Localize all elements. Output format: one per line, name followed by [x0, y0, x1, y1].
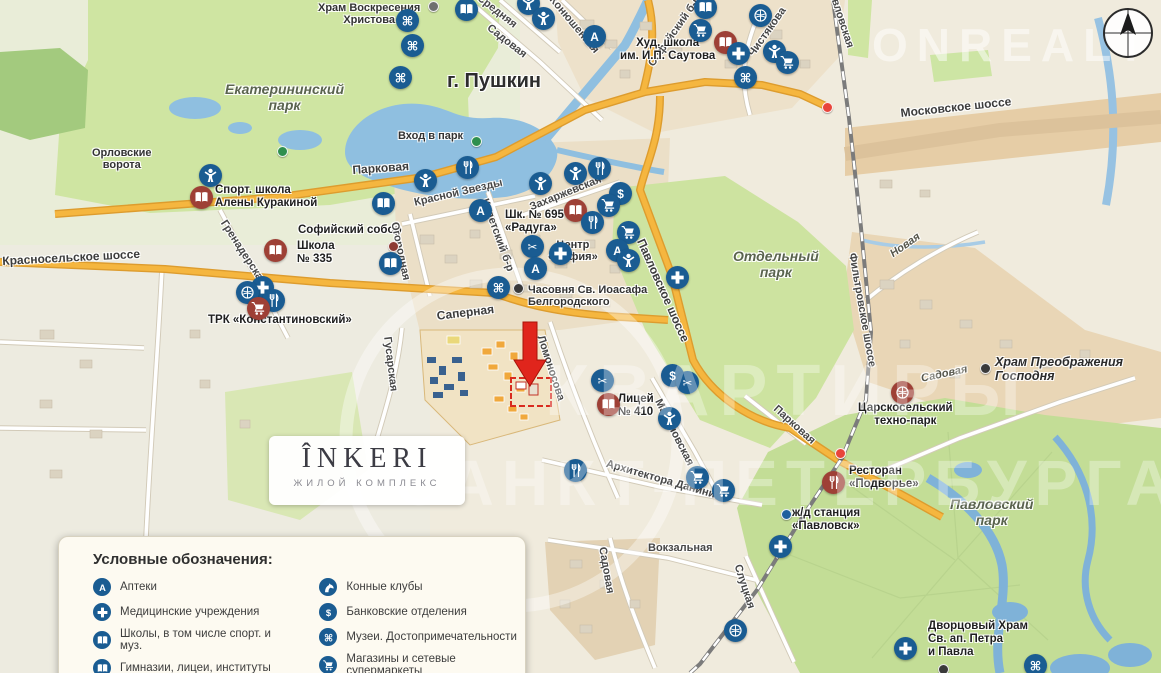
legend-row: Банковские отделения: [319, 603, 525, 621]
legend-bank-icon: [319, 603, 337, 621]
legend-label: Магазины и сетевые супермаркеты: [346, 653, 525, 673]
legend-shop-icon: [319, 656, 337, 673]
legend-row: Музеи. Достопримечательности: [319, 628, 525, 646]
legend-column-right: Конные клубыБанковские отделенияМузеи. Д…: [319, 578, 525, 673]
legend-school-icon: [93, 659, 111, 673]
inkeri-logo: ÎNKERI ЖИЛОЙ КОМПЛЕКС: [269, 436, 465, 505]
legend-label: Гимназии, лицеи, институты: [120, 662, 271, 673]
legend-label: Конные клубы: [346, 581, 422, 593]
legend-label: Музеи. Достопримечательности: [346, 631, 517, 643]
legend-pharmacy-icon: [93, 578, 111, 596]
inkeri-title: ÎNKERI: [269, 443, 465, 475]
legend-medical-icon: [93, 603, 111, 621]
map-legend: Условные обозначения: АптекиМедицинские …: [58, 536, 526, 673]
inkeri-subtitle: ЖИЛОЙ КОМПЛЕКС: [269, 478, 465, 489]
compass-icon: [1100, 5, 1156, 61]
legend-school-icon: [93, 631, 111, 649]
legend-label: Банковские отделения: [346, 606, 467, 618]
legend-row: Медицинские учреждения: [93, 603, 293, 621]
legend-row: Школы, в том числе спорт. и муз.: [93, 628, 293, 652]
legend-column-left: АптекиМедицинские учрежденияШколы, в том…: [93, 578, 293, 673]
legend-row: Гимназии, лицеи, институты: [93, 659, 293, 673]
legend-row: Аптеки: [93, 578, 293, 596]
legend-label: Школы, в том числе спорт. и муз.: [120, 628, 293, 652]
legend-label: Медицинские учреждения: [120, 606, 259, 618]
legend-row: Конные клубы: [319, 578, 525, 596]
legend-title: Условные обозначения:: [93, 551, 525, 568]
legend-horse-icon: [319, 578, 337, 596]
legend-museum-icon: [319, 628, 337, 646]
legend-row: Магазины и сетевые супермаркеты: [319, 653, 525, 673]
legend-label: Аптеки: [120, 581, 157, 593]
map-screenshot: A $ ⌘ ✂: [0, 0, 1161, 673]
